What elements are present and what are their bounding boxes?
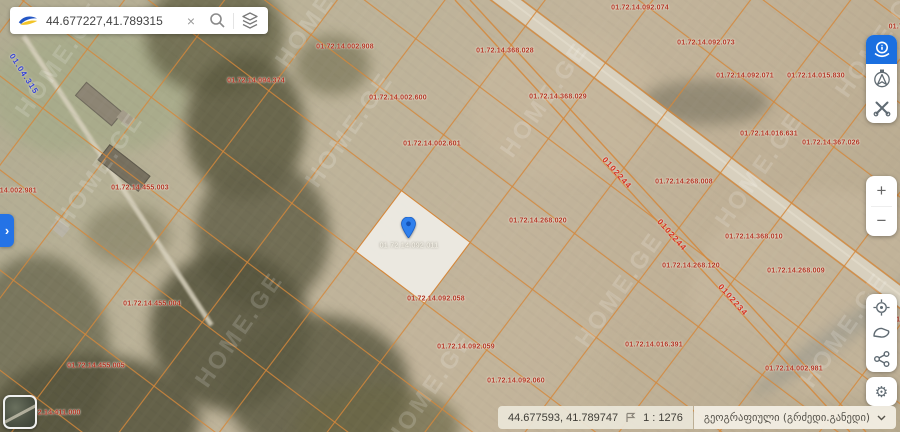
parcel-label: 01.72.14.002.981 (765, 366, 823, 373)
watermark-text: HOME.GE (300, 67, 400, 193)
parcel-label: 01.72.14.015.830 (787, 73, 845, 80)
building (116, 110, 133, 127)
layers-icon[interactable] (240, 11, 260, 31)
parcel-label: 01.72.14 (889, 24, 900, 31)
location-pin[interactable] (401, 217, 416, 238)
zoom-in-button[interactable]: + (866, 176, 897, 206)
parcel-label: 01.72.14.092.074 (611, 5, 669, 12)
watermark-layer: HOME.GEHOME.GEHOME.GEHOME.GEHOME.GEHOME.… (0, 0, 900, 432)
road-code-label: 01.04.315 (8, 52, 41, 96)
watermark-text: HOME.GE (270, 0, 370, 73)
parcel-label: 01.72.14.016.391 (625, 342, 683, 349)
road-code-label: 0102234 (716, 282, 749, 317)
road-code-label: 0102244 (655, 217, 688, 252)
cadastral-layer (0, 0, 900, 432)
watermark-text: HOME.GE (50, 107, 150, 233)
selected-parcel (356, 191, 470, 303)
search-icon[interactable] (207, 11, 227, 31)
building (75, 82, 123, 127)
trees (185, 55, 305, 200)
parcel-label: 01.72.14.268.009 (767, 268, 825, 275)
parcel-label: 01.72.14.094.374 (227, 78, 285, 85)
parcel-label: 01.72.14.002.600 (369, 95, 427, 102)
secondary-tools-group (866, 294, 897, 372)
watermark-text: HOME.GE (190, 267, 290, 393)
zoom-out-button[interactable]: − (866, 207, 897, 237)
identify-tool-button[interactable] (866, 35, 897, 64)
map-scale: 1 : 1276 (643, 412, 683, 424)
sidebar-expand-button[interactable]: › (0, 214, 14, 247)
parcel-label: 01.72.14.268.020 (509, 218, 567, 225)
trees (225, 315, 410, 432)
road-code-label: 0102244 (600, 155, 633, 190)
parcel-label: 01.72.14.092.058 (407, 296, 465, 303)
settings-button[interactable]: ⚙ (866, 377, 897, 406)
map-tools-group (866, 35, 897, 123)
crs-dropdown[interactable]: გეოგრაფიული (გრძედი.განედი) (694, 406, 896, 429)
parcel-label: 01.72.14.092.060 (487, 378, 545, 385)
parcel-label: 01.72.14.092.059 (437, 344, 495, 351)
watermark-text: HOME.GE (495, 37, 595, 163)
status-bar: 44.677593, 41.789747 1 : 1276 გეოგრაფიულ… (498, 406, 896, 429)
map-application: HOME.GEHOME.GEHOME.GEHOME.GEHOME.GEHOME.… (0, 0, 900, 432)
parcel-label: 01.72.14.002.981 (0, 188, 37, 195)
compass-tool-button[interactable] (866, 64, 897, 93)
search-bar: × (10, 7, 268, 34)
zoom-control: + − (866, 176, 897, 236)
parcel-labels-layer: 01.72.14.002.90801.72.14.002.60001.72.14… (0, 0, 900, 432)
selected-parcel-label: 01.72.14.092.011 (380, 243, 439, 250)
home-ge-logo-icon (18, 11, 38, 31)
parcel-label: 01.72.14.368.029 (529, 94, 587, 101)
field-patch (35, 145, 165, 240)
status-left-segment: 44.677593, 41.789747 1 : 1276 (498, 406, 693, 429)
parcel-label: 01.72.14.367.026 (802, 140, 860, 147)
trees (295, 35, 370, 95)
parcel-label: 01.72.14.368.010 (725, 234, 783, 241)
parcel-label: 01.72.14.002.601 (403, 141, 461, 148)
locate-tool-button[interactable] (866, 294, 897, 320)
building (97, 144, 150, 192)
parcel-label: 01.72.14.455.005 (67, 363, 125, 370)
share-tool-button[interactable] (866, 346, 897, 372)
watermark-text: HOME.GE (570, 227, 670, 353)
gear-icon: ⚙ (875, 383, 888, 401)
search-input[interactable] (44, 13, 175, 29)
soil-patch (640, 80, 770, 125)
parcel-label: 01.72.14.268.008 (655, 179, 713, 186)
trees (295, 385, 460, 432)
parcel-label: 01.72.14.002.908 (316, 44, 374, 51)
chevron-down-icon (877, 415, 886, 421)
parcel-label: 01.72.14.455.003 (111, 185, 169, 192)
parcel-label: 01.72.14.092.071 (716, 73, 774, 80)
parcel-label: 01.72.14.268.120 (662, 263, 720, 270)
parcel-label: 01.72.14.092.073 (677, 40, 735, 47)
terrain-texture (0, 0, 900, 432)
parcel-label: 01.72.14.016.631 (740, 131, 798, 138)
watermark-text: HOME.GE (380, 327, 480, 432)
draw-area-tool-button[interactable] (866, 320, 897, 346)
field-patch (0, 25, 190, 160)
cursor-coordinates: 44.677593, 41.789747 (508, 412, 618, 424)
field-patch (470, 30, 660, 180)
parcel-label: 01.72.14.368.028 (476, 48, 534, 55)
building (50, 218, 70, 237)
parcel-label: 01.72.14.455.004 (123, 301, 181, 308)
clear-icon[interactable]: × (181, 11, 201, 31)
trees (195, 160, 330, 310)
trees (150, 250, 310, 410)
divider (233, 13, 234, 29)
crs-label: გეოგრაფიული (გრძედი.განედი) (704, 412, 870, 424)
map-viewport[interactable]: HOME.GEHOME.GEHOME.GEHOME.GEHOME.GEHOME.… (0, 0, 900, 432)
dirt-trail (21, 34, 213, 326)
chevron-right-icon: › (5, 223, 9, 238)
scale-flag-icon (625, 412, 636, 423)
split-measure-tool-button[interactable] (866, 93, 897, 122)
watermark-text: HOME.GE (710, 107, 810, 233)
basemap-thumbnail[interactable] (3, 395, 37, 429)
trees (85, 205, 170, 265)
